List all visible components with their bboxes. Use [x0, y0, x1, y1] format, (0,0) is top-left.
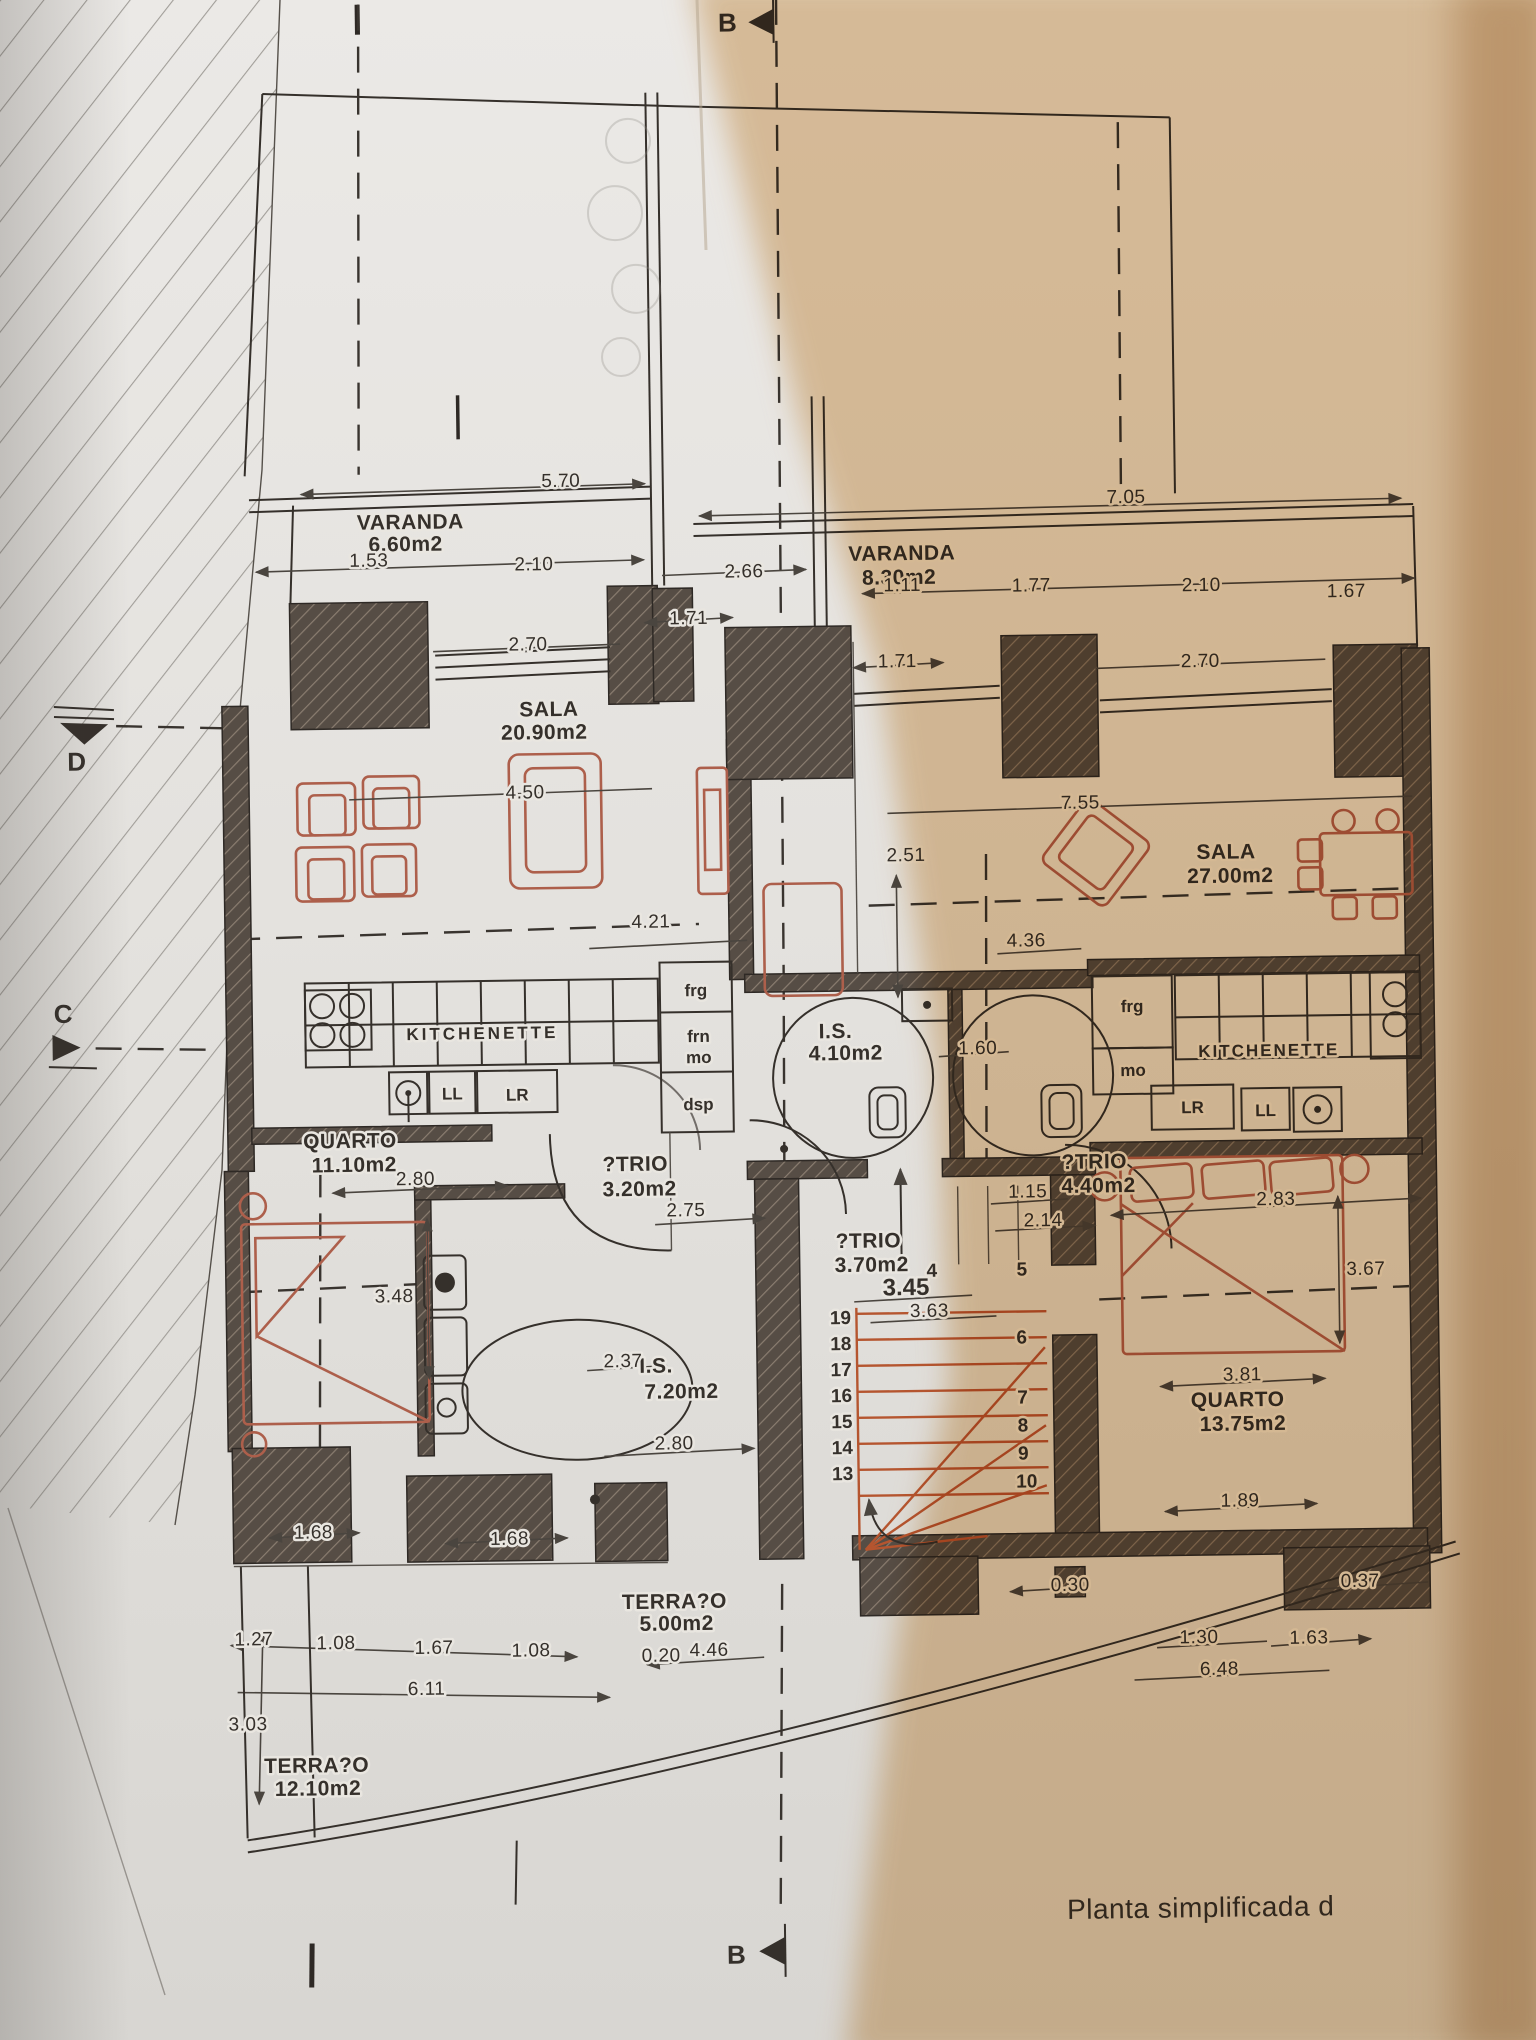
- label-ll-left: LL: [442, 1084, 463, 1103]
- step-19: 19: [830, 1308, 851, 1329]
- floor-plan-photo: VARANDA 6.60m2 SALA 20.90m2 QUARTO 11.10…: [0, 0, 1536, 2040]
- dim-5-70: 5.70: [541, 471, 580, 493]
- dim-2-80-a: 2.80: [396, 1169, 435, 1191]
- label-dsp-left: dsp: [683, 1095, 713, 1114]
- room-area-sala-left: 20.90m2: [501, 721, 588, 745]
- dim-3-48: 3.48: [374, 1286, 413, 1308]
- floor-plan-drawing: VARANDA 6.60m2 SALA 20.90m2 QUARTO 11.10…: [0, 0, 1536, 2040]
- dim-2-70-a: 2.70: [508, 634, 547, 656]
- dim-1-53: 1.53: [349, 550, 388, 572]
- dim-3-45: 3.45: [882, 1274, 929, 1302]
- dim-4-21: 4.21: [631, 911, 670, 933]
- room-label-sala-left: SALA: [519, 698, 578, 722]
- room-label-varanda-left: VARANDA: [357, 510, 464, 534]
- room-label-is-left: I.S.: [639, 1354, 673, 1377]
- dim-2-80-b: 2.80: [655, 1433, 694, 1455]
- stair-numbers-left-flight: 19 18 17 16 15 14 13: [830, 1308, 854, 1485]
- room-area-is-mid: 4.10m2: [808, 1041, 883, 1065]
- step-14: 14: [832, 1438, 854, 1459]
- dim-1-68-b: 1.68: [490, 1528, 529, 1550]
- dim-1-08-a: 1.08: [316, 1633, 355, 1655]
- dim-2-10-a: 2.10: [514, 554, 553, 576]
- room-label-atrio-left: ?TRIO: [602, 1152, 668, 1176]
- step-4: 4: [926, 1261, 937, 1282]
- room-label-terraco-left: TERRA?O: [264, 1754, 369, 1778]
- room-area-terraco-mid: 5.00m2: [639, 1612, 714, 1636]
- room-area-atrio-left: 3.20m2: [602, 1177, 677, 1201]
- room-area-is-left: 7.20m2: [644, 1380, 719, 1404]
- dim-1-68-a: 1.68: [294, 1522, 333, 1544]
- dim-1-08-b: 1.08: [511, 1640, 550, 1662]
- room-label-atrio-mid: ?TRIO: [835, 1229, 901, 1253]
- photo-edge-shadow: [0, 0, 130, 2040]
- dim-3-63: 3.63: [910, 1301, 949, 1323]
- dim-2-75: 2.75: [666, 1200, 705, 1222]
- room-label-terraco-mid: TERRA?O: [622, 1590, 727, 1614]
- room-label-is-mid: I.S.: [819, 1020, 853, 1043]
- label-frg-left: frg: [684, 981, 707, 1000]
- room-area-quarto-left: 11.10m2: [311, 1153, 397, 1177]
- label-frn-left: frn: [687, 1027, 710, 1046]
- step-13: 13: [832, 1464, 853, 1485]
- dim-1-71-a: 1.71: [669, 608, 708, 630]
- step-18: 18: [830, 1334, 851, 1355]
- dim-2-66: 2.66: [724, 561, 763, 583]
- dim-4-50: 4.50: [505, 782, 544, 804]
- dim-3-03: 3.03: [228, 1714, 267, 1736]
- dim-2-37: 2.37: [603, 1351, 642, 1373]
- room-label-quarto-left: QUARTO: [303, 1129, 397, 1153]
- step-17: 17: [830, 1360, 851, 1381]
- dim-4-46: 4.46: [689, 1640, 728, 1662]
- step-16: 16: [831, 1386, 852, 1407]
- room-area-terraco-left: 12.10m2: [275, 1777, 362, 1801]
- dim-0-20: 0.20: [642, 1645, 681, 1667]
- label-lr-left: LR: [506, 1085, 529, 1104]
- dim-6-11: 6.11: [408, 1679, 446, 1701]
- room-label-kitchenette-left: KITCHENETTE: [406, 1023, 558, 1044]
- section-b-bottom-label: B: [727, 1939, 746, 1969]
- step-15: 15: [831, 1412, 853, 1433]
- dim-1-67-a: 1.67: [414, 1638, 453, 1660]
- dim-1-27: 1.27: [234, 1629, 273, 1651]
- label-mo-left: mo: [686, 1048, 712, 1067]
